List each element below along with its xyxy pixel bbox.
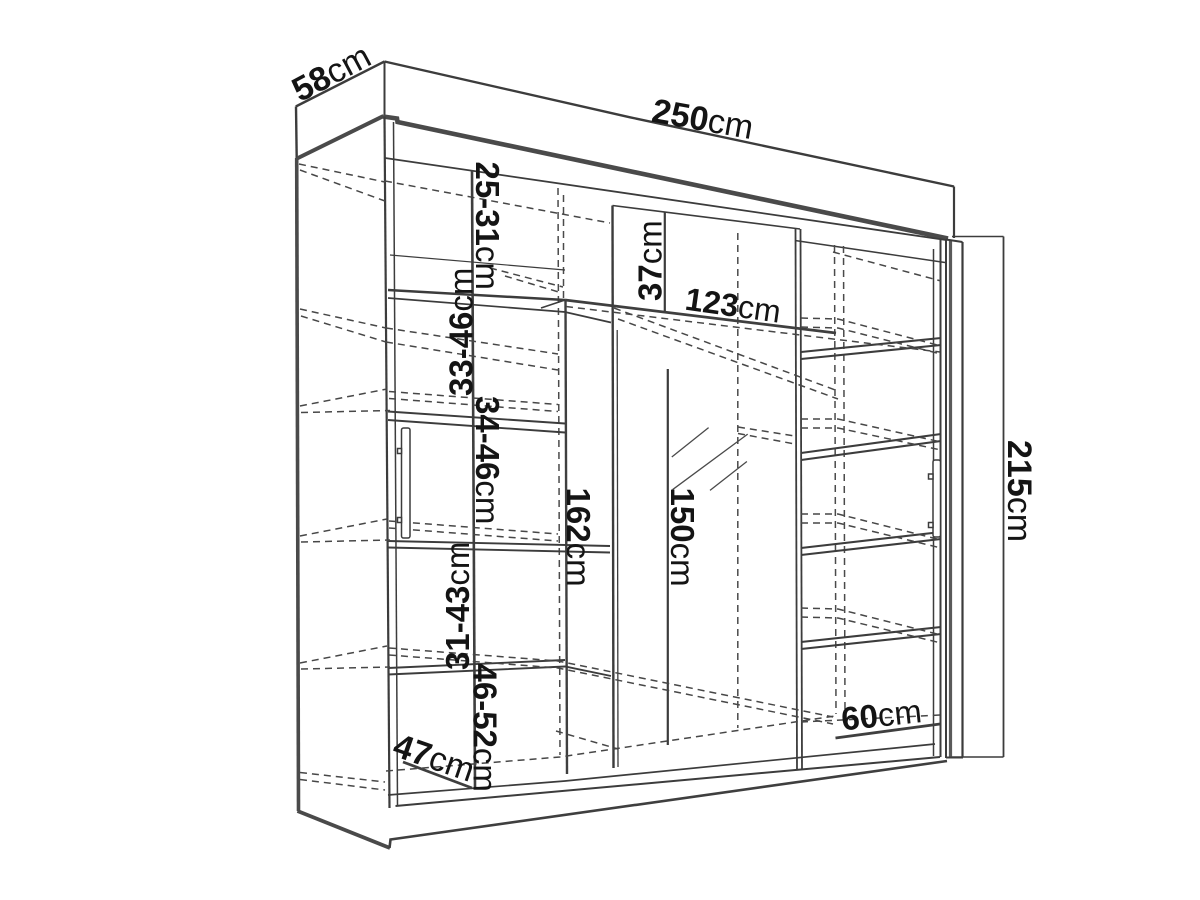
svg-text:37cm: 37cm: [632, 220, 669, 301]
svg-text:33-46cm: 33-46cm: [443, 268, 480, 396]
svg-text:58cm: 58cm: [286, 37, 377, 110]
svg-text:150cm: 150cm: [664, 488, 701, 587]
svg-text:250cm: 250cm: [649, 92, 756, 147]
svg-text:215cm: 215cm: [1000, 440, 1038, 542]
svg-text:60cm: 60cm: [839, 692, 923, 737]
svg-text:31-43cm: 31-43cm: [439, 542, 476, 670]
svg-text:162cm: 162cm: [560, 488, 597, 587]
svg-text:47cm: 47cm: [388, 727, 479, 790]
svg-text:34-46cm: 34-46cm: [469, 396, 506, 524]
